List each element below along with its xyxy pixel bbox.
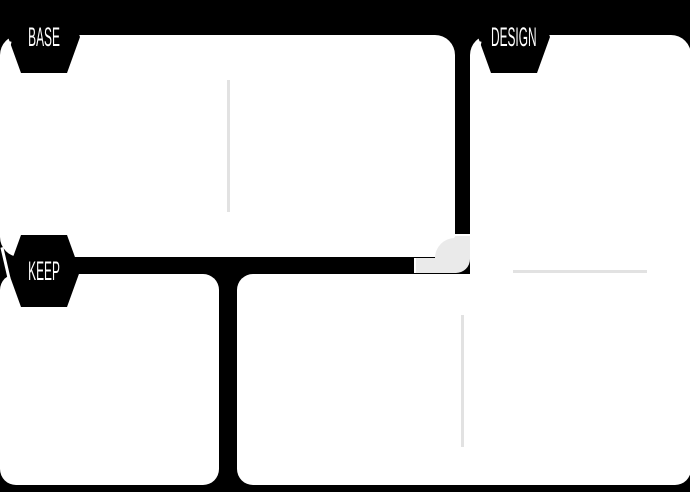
pipe-elbow-shape — [416, 236, 470, 273]
tab-design-label: DESIGN — [491, 24, 537, 51]
guide-line-vertical-bottom-panel — [461, 315, 464, 447]
panel-bottom-right[interactable] — [237, 274, 690, 485]
pipe-elbow-inactive — [416, 236, 470, 273]
design-canvas: BASE DESIGN KEEP — [0, 0, 690, 492]
pipe-horizontal-keep — [60, 258, 413, 273]
tab-base-label: BASE — [28, 24, 60, 51]
pipe-gap-top — [455, 234, 470, 237]
guide-line-horizontal-design-panel — [513, 270, 647, 273]
pipe-gap-left — [414, 258, 417, 273]
guide-line-vertical-base-panel — [227, 80, 230, 212]
tab-keep-label: KEEP — [28, 258, 60, 285]
pipe-vertical-down — [219, 273, 236, 492]
